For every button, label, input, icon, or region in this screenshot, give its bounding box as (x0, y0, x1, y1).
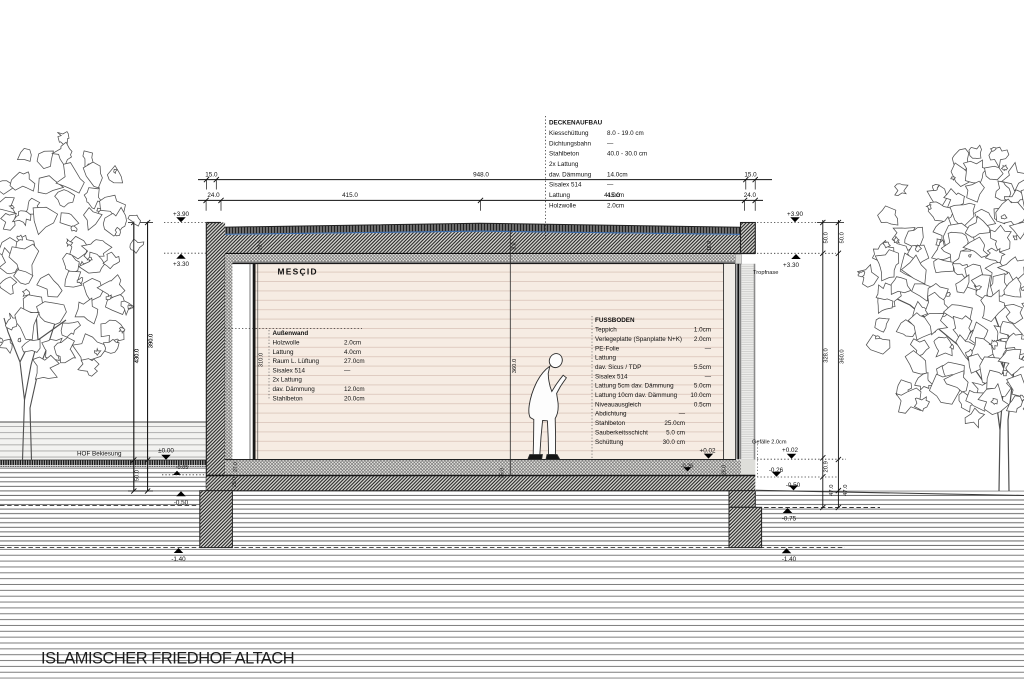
svg-text:25.0: 25.0 (232, 477, 238, 487)
svg-text:2.0cm: 2.0cm (694, 336, 711, 343)
svg-text:Sisalex 514: Sisalex 514 (273, 367, 306, 374)
svg-text:415.0: 415.0 (342, 192, 358, 199)
svg-text:Niveauausgleich: Niveauausgleich (595, 401, 642, 408)
svg-text:948.0: 948.0 (473, 171, 489, 178)
svg-text:50.0: 50.0 (135, 470, 141, 481)
svg-text:16.0: 16.0 (707, 241, 713, 251)
svg-text:390.0: 390.0 (148, 334, 154, 349)
svg-text:Stahlbeton: Stahlbeton (595, 420, 626, 427)
svg-text:19.0: 19.0 (258, 240, 264, 250)
svg-text:—: — (705, 345, 712, 352)
svg-text:50.0: 50.0 (839, 232, 845, 243)
svg-text:+3.30: +3.30 (783, 262, 799, 269)
svg-text:30.0 cm: 30.0 cm (663, 439, 685, 446)
svg-text:FUSSBODEN: FUSSBODEN (595, 317, 635, 324)
svg-text:—: — (679, 411, 686, 418)
svg-text:24.0: 24.0 (744, 192, 757, 199)
svg-text:14.0cm: 14.0cm (607, 171, 628, 178)
svg-text:Sauberkeitsschicht: Sauberkeitsschicht (595, 429, 648, 436)
svg-text:Raum L. Lüftung: Raum L. Lüftung (273, 358, 320, 365)
svg-text:1.0cm: 1.0cm (694, 327, 711, 334)
svg-text:Holzwolle: Holzwolle (549, 202, 576, 209)
svg-text:27.0: 27.0 (233, 462, 239, 472)
svg-text:5.0 cm: 5.0 cm (666, 429, 685, 436)
svg-text:360.0: 360.0 (839, 349, 845, 364)
svg-text:Kiesschüttung: Kiesschüttung (549, 130, 589, 137)
svg-text:47.0: 47.0 (843, 485, 849, 496)
svg-text:Lattung: Lattung (273, 349, 295, 356)
svg-text:26.0: 26.0 (722, 465, 728, 475)
svg-text:Holzwolle: Holzwolle (273, 340, 300, 347)
svg-text:-1.40: -1.40 (782, 556, 797, 563)
svg-text:—: — (344, 367, 351, 374)
svg-text:+0.02: +0.02 (782, 447, 798, 454)
svg-text:-0.75: -0.75 (782, 516, 797, 523)
svg-text:Tropfnase: Tropfnase (753, 270, 778, 276)
svg-text:Stahlbeton: Stahlbeton (549, 151, 580, 158)
svg-text:15.0: 15.0 (744, 171, 757, 178)
svg-text:Lattung: Lattung (595, 355, 617, 362)
svg-text:Außenwand: Außenwand (273, 330, 309, 337)
svg-text:Sisalex 514: Sisalex 514 (595, 373, 628, 380)
svg-text:Abdichtung: Abdichtung (595, 411, 627, 418)
svg-text:310.0: 310.0 (259, 353, 265, 368)
svg-text:+3.30: +3.30 (173, 261, 189, 268)
svg-text:40.0 - 30.0 cm: 40.0 - 30.0 cm (607, 151, 647, 158)
svg-text:-1.40: -1.40 (171, 556, 186, 563)
svg-text:Dichtungsbahn: Dichtungsbahn (549, 140, 592, 147)
svg-text:+3.90: +3.90 (173, 211, 189, 218)
svg-text:360.0: 360.0 (512, 359, 518, 374)
svg-text:4.0cm: 4.0cm (344, 349, 361, 356)
svg-text:ISLAMISCHER FRIEDHOF ALTACH: ISLAMISCHER FRIEDHOF ALTACH (41, 650, 294, 668)
svg-text:Sisalex 514: Sisalex 514 (549, 182, 582, 189)
svg-text:2x Lattung: 2x Lattung (549, 161, 579, 168)
svg-text:—: — (607, 140, 614, 147)
svg-text:Schüttung: Schüttung (595, 439, 624, 446)
svg-text:47.0: 47.0 (829, 485, 835, 496)
svg-text:DECKENAUFBAU: DECKENAUFBAU (549, 120, 603, 127)
svg-text:—: — (607, 182, 614, 189)
svg-text:2x Lattung: 2x Lattung (273, 377, 303, 384)
svg-text:12.0cm: 12.0cm (344, 386, 365, 393)
svg-text:+3.90: +3.90 (787, 211, 803, 218)
svg-text:8.0 - 19.0 cm: 8.0 - 19.0 cm (607, 130, 644, 137)
svg-text:dav. Dämmung: dav. Dämmung (549, 171, 592, 178)
svg-text:Stahlbeton: Stahlbeton (273, 395, 304, 402)
svg-text:MESÇID: MESÇID (278, 267, 318, 277)
svg-text:415.0: 415.0 (604, 192, 620, 199)
svg-text:PE-Folie: PE-Folie (595, 345, 620, 352)
svg-text:2.0cm: 2.0cm (607, 202, 624, 209)
svg-text:HOF Bekiesung: HOF Bekiesung (77, 450, 122, 457)
svg-text:20.9: 20.9 (824, 461, 830, 472)
svg-text:Verlegeplatte (Spanplatte N+K): Verlegeplatte (Spanplatte N+K) (595, 336, 682, 343)
svg-text:430.0: 430.0 (135, 349, 141, 364)
svg-text:dav. Sicus / TDP: dav. Sicus / TDP (595, 364, 641, 371)
svg-text:Lattung 5cm dav. Dämmung: Lattung 5cm dav. Dämmung (595, 383, 674, 390)
svg-text:5.0cm: 5.0cm (694, 383, 711, 390)
svg-text:-0.50: -0.50 (174, 499, 189, 506)
svg-text:8.0: 8.0 (512, 242, 518, 249)
svg-text:dav. Dämmung: dav. Dämmung (273, 386, 316, 393)
svg-text:15.0: 15.0 (205, 171, 218, 178)
svg-text:0.5cm: 0.5cm (694, 401, 711, 408)
svg-text:25.0cm: 25.0cm (664, 420, 685, 427)
svg-text:Lattung 10cm dav. Dämmung: Lattung 10cm dav. Dämmung (595, 392, 678, 399)
svg-text:50.0: 50.0 (824, 232, 830, 243)
svg-text:20.0cm: 20.0cm (344, 395, 365, 402)
svg-text:±0.00: ±0.00 (158, 447, 174, 454)
svg-text:Lattung: Lattung (549, 192, 571, 199)
svg-text:—: — (705, 373, 712, 380)
svg-text:328.0: 328.0 (824, 348, 830, 363)
svg-text:25.0: 25.0 (500, 468, 506, 478)
svg-text:2.0cm: 2.0cm (344, 340, 361, 347)
svg-text:-0.05: -0.05 (176, 465, 189, 471)
svg-text:5.5cm: 5.5cm (694, 364, 711, 371)
svg-text:Teppich: Teppich (595, 327, 617, 334)
svg-text:10.0cm: 10.0cm (690, 392, 711, 399)
svg-text:24.0: 24.0 (207, 192, 220, 199)
svg-text:+0.02: +0.02 (700, 448, 716, 455)
svg-text:27.0cm: 27.0cm (344, 358, 365, 365)
